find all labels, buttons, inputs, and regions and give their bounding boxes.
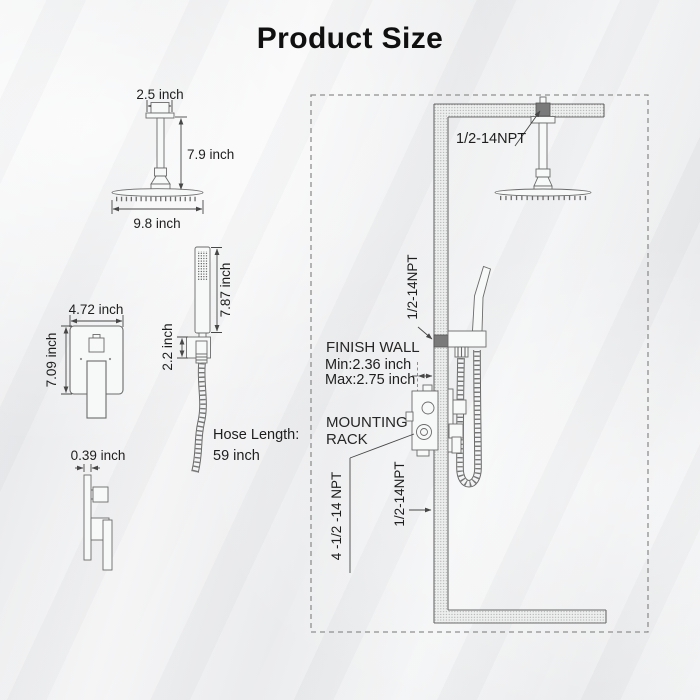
technical-drawing: 2.5 inch 7.9 inch 9.8 inch [0, 0, 700, 700]
rough-in-valve-body [412, 391, 438, 450]
dim-head-diameter-label: 9.8 inch [133, 216, 180, 231]
installed-shower-arm [539, 123, 547, 169]
hot-mark [80, 358, 82, 360]
diverter-button-notch [93, 335, 100, 339]
arm-cone [151, 176, 170, 184]
dim-valve-height-label: 7.09 inch [44, 333, 59, 388]
dim-flange-width-label: 2.5 inch [136, 87, 183, 102]
shower-arm [157, 118, 164, 168]
product-size-page: Product Size 2.5 inch [0, 0, 700, 700]
hose-length-label-line1: Hose Length: [213, 427, 299, 443]
valve-side-diagram: 0.39 inch [71, 448, 126, 570]
trim-diverter-button [453, 400, 466, 414]
handshower-hose [195, 363, 203, 472]
diverter-button [89, 338, 104, 352]
valve-connection-label: 4 -1/2 -14 NPT [329, 472, 344, 561]
shower-head [112, 189, 203, 197]
valve-front-diagram: 4.72 inch 7.09 inch [44, 302, 123, 418]
installed-wand [473, 267, 491, 332]
trim-handle-hub [449, 424, 463, 438]
hose-length-label-line2: 59 inch [213, 448, 260, 464]
page-title: Product Size [0, 22, 700, 56]
dim-arm-height-label: 7.9 inch [187, 147, 234, 162]
installed-arm-cone [534, 177, 552, 186]
installed-shower-head [495, 189, 591, 196]
dim-wand-length-label: 7.87 inch [218, 263, 233, 318]
cold-mark [109, 358, 111, 360]
valve-handle-lever-side [103, 520, 112, 570]
wall-holder-bracket [448, 331, 486, 347]
hand-shower-diagram: 7.87 inch 2.2 inch Hose Length: 59 inch [160, 247, 299, 472]
valve-plate-side [84, 475, 91, 560]
ceiling-connection-label: 1/2-14NPT [456, 131, 526, 147]
hose-nut [196, 354, 207, 363]
supply-connection-annotation: 1/2-14NPT [392, 461, 431, 526]
trim-handle-lever [452, 437, 461, 453]
ceiling-shower-diagram: 2.5 inch 7.9 inch 9.8 inch [112, 87, 234, 231]
supply-connection-label: 1/2-14NPT [392, 461, 407, 526]
installation-diagram: 1/2-14NPT 1/2-14NPT FINISH WALL [311, 95, 648, 632]
dim-valve-depth-label: 0.39 inch [71, 448, 126, 463]
holder-inner [196, 341, 207, 354]
finish-wall-min-label: Min:2.36 inch [325, 357, 411, 373]
mounting-rack-label-line1: MOUNTING [326, 414, 408, 431]
arm-joint [155, 168, 167, 176]
finish-wall-label: FINISH WALL [326, 339, 420, 356]
handshower-spray-face [198, 251, 208, 281]
installed-hose-loop [460, 350, 478, 484]
wall-outlet-fitting [434, 335, 448, 347]
ceiling-flange [146, 113, 174, 118]
dim-holder-height-label: 2.2 inch [160, 323, 175, 370]
valve-handle [87, 361, 106, 418]
dim-valve-width-label: 4.72 inch [69, 302, 124, 317]
valve-port-upper [422, 402, 434, 414]
mounting-tab-bottom [417, 450, 429, 456]
arm-collar [151, 184, 170, 189]
valve-port-lower-inner [421, 429, 428, 436]
handshower-connection-label: 1/2-14NPT [405, 254, 420, 319]
shower-arm-top-block [151, 103, 169, 114]
finish-wall-max-label: Max:2.75 inch [325, 372, 415, 388]
valve-body-stub [423, 385, 432, 391]
ceiling-escutcheon [531, 117, 555, 124]
diverter-button-side [93, 487, 108, 502]
installed-arm-joint [536, 169, 550, 177]
mounting-rack-label-line2: RACK [326, 431, 368, 448]
